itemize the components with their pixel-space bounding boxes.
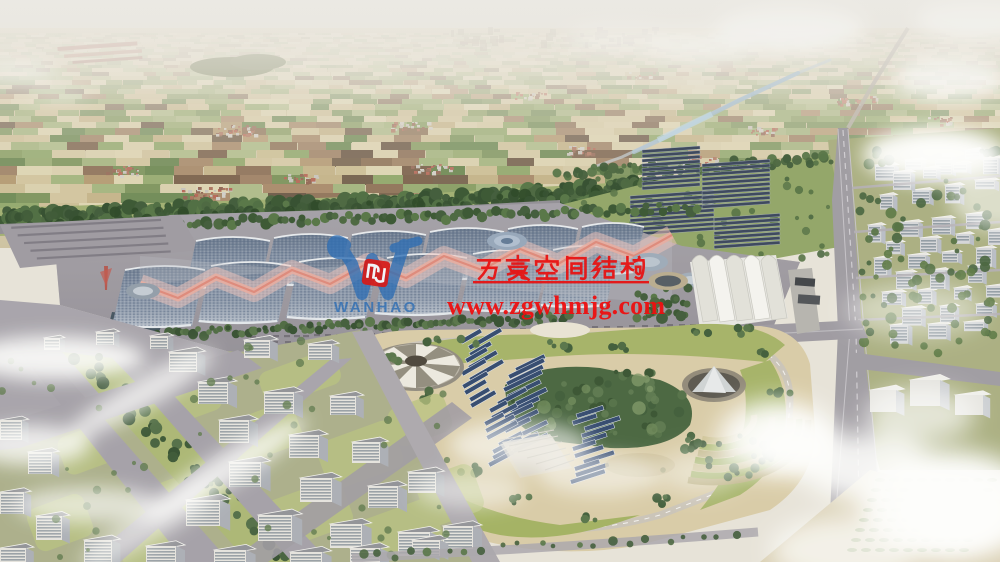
svg-text:www.zgwhmjg.com: www.zgwhmjg.com	[447, 291, 665, 320]
svg-text:WANHAO: WANHAO	[334, 299, 418, 316]
